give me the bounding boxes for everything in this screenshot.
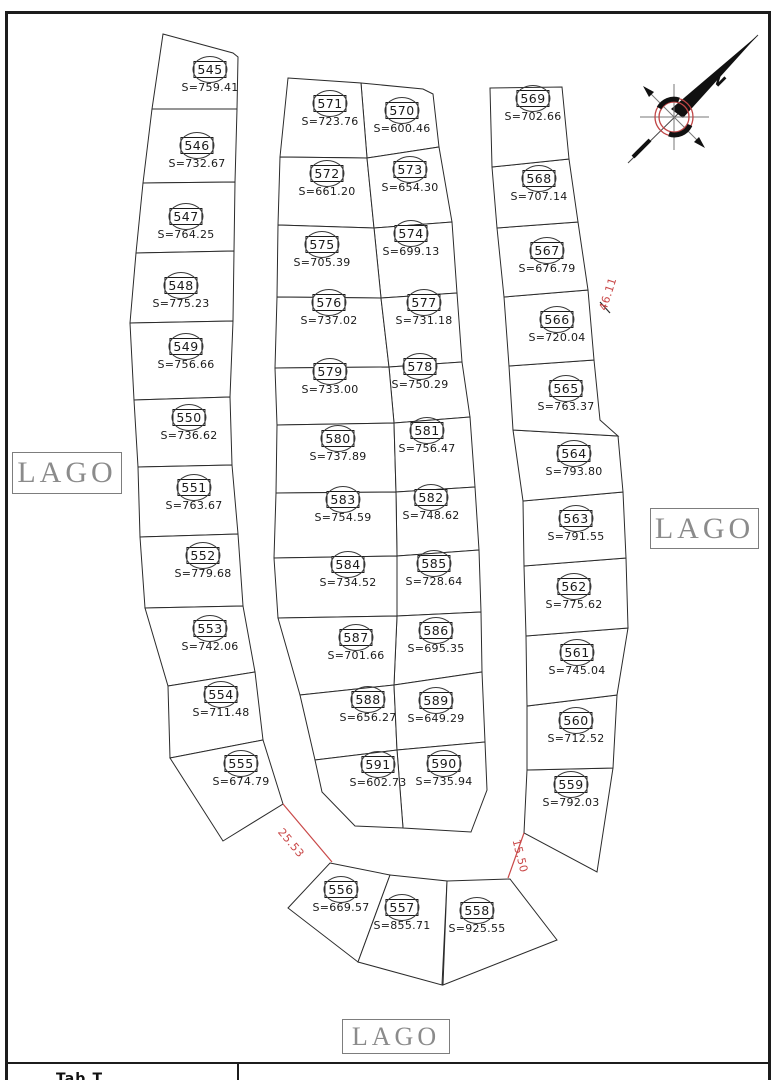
lot-number-badge: 571	[313, 95, 346, 112]
lot-label-588: 588S=656.27	[339, 689, 396, 724]
lot-number-badge: 575	[305, 236, 338, 253]
lot-label-563: 563S=791.55	[547, 508, 604, 543]
lot-number-badge: 580	[321, 430, 354, 447]
lot-number-badge: 552	[186, 547, 219, 564]
lot-label-559: 559S=792.03	[542, 774, 599, 809]
lot-number-badge: 555	[224, 755, 257, 772]
lot-number-badge: 584	[331, 556, 364, 573]
lot-number-badge: 591	[361, 756, 394, 773]
lot-number-badge: 546	[180, 137, 213, 154]
plat-map-page: Tab.T N 545S=759.41546S=732.67547S=764.2…	[0, 0, 777, 1080]
lot-number-badge: 568	[522, 170, 555, 187]
lot-number-badge: 590	[427, 755, 460, 772]
compass-needle	[628, 35, 758, 163]
lake-label-bottom: LAGO	[342, 1019, 450, 1054]
lot-number-badge: 564	[557, 445, 590, 462]
lot-number-badge: 567	[530, 242, 563, 259]
lot-label-547: 547S=764.25	[157, 206, 214, 241]
lot-number-badge: 574	[394, 225, 427, 242]
lot-number-badge: 587	[339, 629, 372, 646]
lot-label-589: 589S=649.29	[407, 690, 464, 725]
lot-label-583: 583S=754.59	[314, 489, 371, 524]
lot-number-badge: 585	[417, 555, 450, 572]
lot-number-badge: 578	[403, 358, 436, 375]
lot-number-badge: 553	[193, 620, 226, 637]
lot-label-575: 575S=705.39	[293, 234, 350, 269]
lot-number-badge: 565	[549, 380, 582, 397]
lot-label-570: 570S=600.46	[373, 100, 430, 135]
lot-label-580: 580S=737.89	[309, 428, 366, 463]
lot-label-578: 578S=750.29	[391, 356, 448, 391]
lot-label-582: 582S=748.62	[402, 487, 459, 522]
lot-number-badge: 579	[313, 363, 346, 380]
lot-label-590: 590S=735.94	[415, 753, 472, 788]
lot-number-badge: 547	[169, 208, 202, 225]
lot-label-585: 585S=728.64	[405, 553, 462, 588]
lot-number-badge: 577	[407, 294, 440, 311]
lot-number-badge: 566	[540, 311, 573, 328]
lot-number-badge: 556	[324, 881, 357, 898]
lot-number-badge: 589	[419, 692, 452, 709]
lot-label-586: 586S=695.35	[407, 620, 464, 655]
lot-number-badge: 554	[204, 686, 237, 703]
lot-label-591: 591S=602.73	[349, 754, 406, 789]
lot-number-badge: 549	[169, 338, 202, 355]
lot-label-573: 573S=654.30	[381, 159, 438, 194]
lot-number-badge: 561	[560, 644, 593, 661]
lot-label-565: 565S=763.37	[537, 378, 594, 413]
lot-number-badge: 559	[554, 776, 587, 793]
lot-label-572: 572S=661.20	[298, 163, 355, 198]
lot-number-badge: 545	[193, 61, 226, 78]
lot-number-badge: 588	[351, 691, 384, 708]
lot-label-551: 551S=763.67	[165, 477, 222, 512]
lot-number-badge: 582	[414, 489, 447, 506]
lot-label-584: 584S=734.52	[319, 554, 376, 589]
lot-number-badge: 550	[172, 409, 205, 426]
lot-label-548: 548S=775.23	[152, 275, 209, 310]
lot-number-badge: 576	[312, 294, 345, 311]
lot-label-571: 571S=723.76	[301, 93, 358, 128]
lot-label-558: 558S=925.55	[448, 900, 505, 935]
lot-label-555: 555S=674.79	[212, 753, 269, 788]
lot-number-badge: 562	[557, 578, 590, 595]
lot-label-552: 552S=779.68	[174, 545, 231, 580]
lake-label-right: LAGO	[650, 508, 759, 549]
lot-number-badge: 573	[393, 161, 426, 178]
title-block-text-fragment: Tab.T	[56, 1071, 103, 1080]
lot-number-badge: 560	[559, 712, 592, 729]
lot-label-550: 550S=736.62	[160, 407, 217, 442]
lot-label-566: 566S=720.04	[528, 309, 585, 344]
lot-number-badge: 557	[385, 899, 418, 916]
lot-number-badge: 583	[326, 491, 359, 508]
lot-label-557: 557S=855.71	[373, 897, 430, 932]
lake-label-left: LAGO	[12, 452, 122, 494]
lot-label-567: 567S=676.79	[518, 240, 575, 275]
lot-label-549: 549S=756.66	[157, 336, 214, 371]
lot-label-564: 564S=793.80	[545, 443, 602, 478]
lot-label-560: 560S=712.52	[547, 710, 604, 745]
lot-label-569: 569S=702.66	[504, 88, 561, 123]
lot-label-587: 587S=701.66	[327, 627, 384, 662]
lot-label-562: 562S=775.62	[545, 576, 602, 611]
lot-label-574: 574S=699.13	[382, 223, 439, 258]
lot-number-badge: 551	[177, 479, 210, 496]
lot-number-badge: 581	[410, 422, 443, 439]
lot-number-badge: 563	[559, 510, 592, 527]
lot-label-576: 576S=737.02	[300, 292, 357, 327]
lot-number-badge: 586	[419, 622, 452, 639]
lot-number-badge: 569	[516, 90, 549, 107]
lot-number-badge: 570	[385, 102, 418, 119]
lot-label-554: 554S=711.48	[192, 684, 249, 719]
lot-label-579: 579S=733.00	[301, 361, 358, 396]
lot-number-badge: 572	[310, 165, 343, 182]
lot-number-badge: 558	[460, 902, 493, 919]
lot-label-545: 545S=759.41	[181, 59, 238, 94]
lot-label-556: 556S=669.57	[312, 879, 369, 914]
lot-label-561: 561S=745.04	[548, 642, 605, 677]
lot-label-581: 581S=756.47	[398, 420, 455, 455]
lot-label-553: 553S=742.06	[181, 618, 238, 653]
lot-label-546: 546S=732.67	[168, 135, 225, 170]
lot-label-577: 577S=731.18	[395, 292, 452, 327]
lot-number-badge: 548	[164, 277, 197, 294]
lot-label-568: 568S=707.14	[510, 168, 567, 203]
